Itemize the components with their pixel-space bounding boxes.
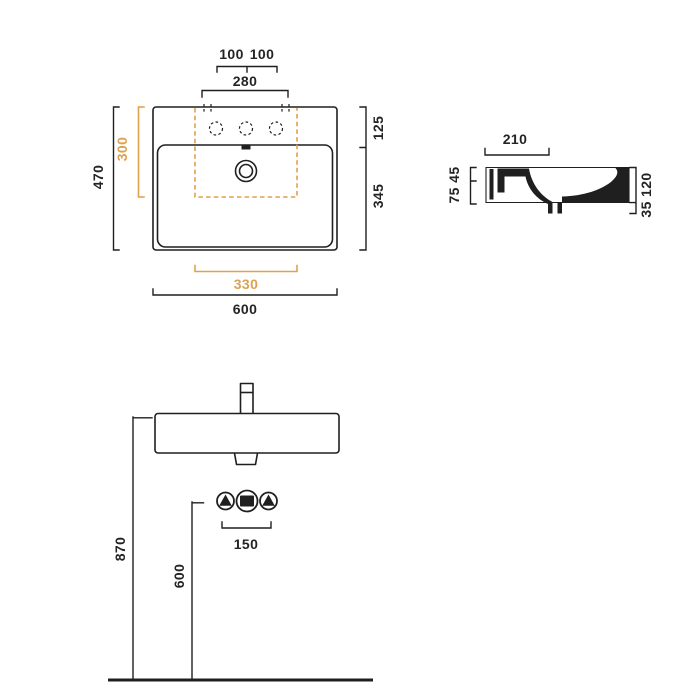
water-supply-symbol-right: [260, 493, 277, 510]
dim-bracket-template-depth: [139, 107, 145, 197]
section-bowl-and-front-wall: [562, 167, 629, 202]
dim-label-tap-spacing-right: 100: [250, 47, 275, 61]
dim-label-rim-height: 870: [113, 537, 127, 562]
dim-label-rim-depth: 125: [371, 115, 385, 140]
front-basin-outline: [155, 414, 339, 454]
dim-label-overall-width: 600: [233, 302, 258, 316]
section-drain-wall: [558, 202, 563, 214]
valve-triangle-icon: [219, 495, 232, 506]
dim-label-overall-depth: 470: [91, 165, 105, 190]
section-back-wall: [490, 169, 494, 200]
dim-label-connection-spacing: 150: [234, 537, 259, 551]
front-view-drawing: [108, 384, 373, 681]
plan-view-drawing: [114, 67, 367, 296]
dim-label-front-heights: 75 45: [447, 166, 461, 203]
overflow-slot: [242, 145, 251, 150]
tap-holes-dashed: [210, 122, 283, 135]
section-deck-and-channel: [498, 169, 553, 214]
dim-bracket-template-width: [195, 266, 297, 272]
dim-bracket-back-heights: [630, 168, 636, 214]
dim-bracket-overall-depth: [114, 107, 120, 250]
dim-bracket-tap-spacing: [217, 67, 277, 73]
waste-square-icon: [240, 496, 254, 507]
plan-basin-outline: [153, 107, 337, 250]
dim-bracket-deck-width: [202, 91, 288, 98]
technical-drawing-sheet: 100 100 280 470 300 125 345 330 600 210 …: [0, 0, 700, 700]
deck-hidden-edge-ticks: [204, 104, 289, 114]
water-supply-symbol-left: [217, 493, 234, 510]
dim-label-deck-width: 280: [233, 74, 258, 88]
faucet: [241, 384, 254, 414]
dim-line-rim-height: [133, 417, 152, 680]
tap-hole-right: [270, 122, 283, 135]
dim-bracket-connection-spacing: [222, 522, 271, 528]
dim-label-back-heights: 35 120: [639, 172, 653, 217]
tap-hole-center: [240, 122, 253, 135]
dim-label-deck-depth: 210: [503, 132, 528, 146]
tap-hole-left: [210, 122, 223, 135]
dim-line-connection-height: [192, 502, 204, 680]
plan-dimension-brackets: [114, 67, 367, 296]
dim-bracket-front-heights: [471, 168, 477, 205]
side-dimension-brackets: [471, 149, 637, 214]
dim-label-template-depth: 300: [115, 137, 129, 162]
front-drain-stub: [235, 453, 258, 465]
dim-label-connection-height: 600: [172, 564, 186, 589]
drawing-linework: [0, 0, 700, 700]
side-section-drawing: [471, 149, 637, 214]
dim-label-tap-spacing-left: 100: [219, 47, 244, 61]
valve-triangle-icon: [262, 495, 275, 506]
dim-bracket-deck-depth: [485, 149, 549, 156]
plan-drain: [236, 161, 257, 182]
dim-label-template-width: 330: [234, 277, 259, 291]
dim-bracket-rim-basin-depth: [360, 107, 366, 250]
template-outline-dashed: [195, 108, 297, 197]
waste-outlet-symbol: [237, 491, 258, 512]
dim-label-basin-depth: 345: [371, 184, 385, 209]
